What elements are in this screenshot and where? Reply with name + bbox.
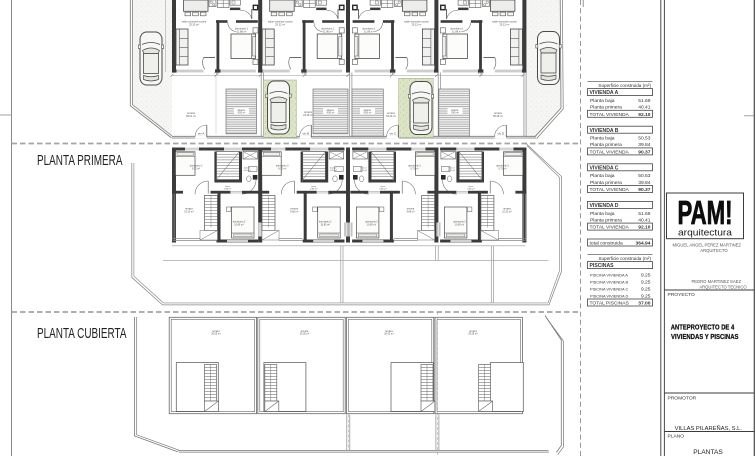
svg-text:364.94: 364.94 [636, 241, 651, 247]
svg-text:Planta primera: Planta primera [590, 217, 622, 223]
svg-text:37.00: 37.00 [638, 301, 651, 307]
svg-text:40.41: 40.41 [638, 217, 651, 223]
svg-text:ARQUITECTO: ARQUITECTO [700, 248, 728, 253]
svg-text:4.45 m²: 4.45 m² [360, 169, 367, 172]
svg-text:TOTAL VIVIENDA: TOTAL VIVIENDA [590, 187, 630, 193]
svg-text:VILLAS PILAREÑAS, S.L.: VILLAS PILAREÑAS, S.L. [675, 425, 743, 432]
svg-text:viv B: viv B [303, 132, 310, 136]
svg-text:7.48: 7.48 [214, 72, 219, 75]
svg-text:viv A: viv A [198, 132, 204, 136]
svg-text:9.68 m²: 9.68 m² [290, 210, 298, 213]
svg-text:10.85 m²: 10.85 m² [455, 223, 465, 226]
svg-text:PAM!: PAM! [678, 194, 733, 231]
svg-text:11.88 m²: 11.88 m² [452, 31, 462, 34]
svg-text:90.37: 90.37 [638, 150, 651, 156]
svg-text:9.25: 9.25 [641, 272, 651, 278]
svg-text:54.40 m²: 54.40 m² [386, 115, 396, 118]
svg-text:4.45 m²: 4.45 m² [243, 169, 250, 172]
svg-text:4.45 m²: 4.45 m² [448, 169, 455, 172]
svg-text:viv C: viv C [390, 132, 398, 136]
svg-text:10.85 m²: 10.85 m² [367, 223, 377, 226]
svg-text:PEDRO MARTINEZ SAEZ: PEDRO MARTINEZ SAEZ [692, 279, 742, 284]
svg-text:50.53: 50.53 [638, 136, 651, 142]
svg-text:total construida: total construida [590, 241, 623, 247]
svg-text:9.85 m²: 9.85 m² [364, 112, 372, 115]
svg-text:Planta primera: Planta primera [590, 105, 622, 111]
svg-text:TOTAL VIVIENDA: TOTAL VIVIENDA [590, 225, 630, 231]
svg-text:58.48 m²: 58.48 m² [493, 115, 503, 118]
svg-text:PLANTAS: PLANTAS [693, 449, 723, 456]
svg-text:arquitectura: arquitectura [678, 228, 733, 239]
svg-text:39.84: 39.84 [638, 142, 651, 148]
svg-text:VIVIENDAS Y PISCINAS: VIVIENDAS Y PISCINAS [671, 332, 739, 341]
svg-text:10.85 m²: 10.85 m² [234, 223, 244, 226]
svg-text:aparca.: aparca. [451, 109, 459, 112]
svg-text:Planta baja: Planta baja [590, 211, 615, 217]
svg-text:69.01 m²: 69.01 m² [186, 115, 196, 118]
svg-text:VIVIENDA A: VIVIENDA A [590, 90, 619, 96]
svg-text:Planta baja: Planta baja [590, 98, 615, 104]
svg-text:ANTEPROYECTO DE 4: ANTEPROYECTO DE 4 [671, 323, 735, 332]
svg-text:10.23 m²: 10.23 m² [502, 210, 512, 213]
svg-text:30.05 m²: 30.05 m² [211, 333, 221, 336]
svg-text:PLANTA PRIMERA: PLANTA PRIMERA [37, 153, 123, 169]
svg-text:24.48 m²: 24.48 m² [303, 114, 313, 117]
svg-text:10.85 m²: 10.85 m² [320, 223, 330, 226]
svg-text:9.25: 9.25 [641, 286, 651, 292]
svg-text:ARQUITECTO TECNICO: ARQUITECTO TECNICO [699, 285, 747, 290]
svg-text:PISCINA VIVIENDA D: PISCINA VIVIENDA D [590, 293, 628, 298]
svg-text:9.72 m²: 9.72 m² [278, 167, 286, 170]
svg-text:25.32 m²: 25.32 m² [499, 23, 509, 26]
svg-text:4.68: 4.68 [478, 72, 483, 75]
svg-text:Superficie construida (m²): Superficie construida (m²) [598, 256, 651, 261]
svg-text:9.85 m²: 9.85 m² [451, 112, 459, 115]
svg-text:9.85 m²: 9.85 m² [327, 112, 335, 115]
svg-text:92.10: 92.10 [638, 112, 651, 118]
svg-text:11.88 m²: 11.88 m² [237, 31, 247, 34]
svg-text:2.88 m²: 2.88 m² [224, 187, 232, 190]
svg-text:aparca.: aparca. [327, 109, 335, 112]
svg-text:25.32 m²: 25.32 m² [189, 23, 199, 26]
svg-text:30.05 m²: 30.05 m² [384, 333, 394, 336]
svg-text:90.37: 90.37 [638, 187, 651, 193]
svg-text:39.84: 39.84 [638, 180, 651, 186]
svg-text:9.72 m²: 9.72 m² [410, 167, 418, 170]
svg-text:PISCINA VIVIENDA B: PISCINA VIVIENDA B [590, 279, 628, 284]
svg-text:11.86 m²: 11.86 m² [364, 31, 374, 34]
svg-text:11.86 m²: 11.86 m² [323, 31, 333, 34]
svg-text:2.88 m²: 2.88 m² [467, 187, 475, 190]
svg-text:40.41: 40.41 [638, 105, 651, 111]
svg-text:TOTAL VIVIENDA: TOTAL VIVIENDA [590, 150, 630, 156]
svg-text:Planta primera: Planta primera [590, 180, 622, 186]
svg-text:10.23 m²: 10.23 m² [184, 210, 194, 213]
svg-text:PISCINA VIVIENDA A: PISCINA VIVIENDA A [590, 272, 628, 277]
svg-text:PISCINAS: PISCINAS [590, 263, 615, 269]
svg-text:Planta baja: Planta baja [590, 173, 615, 179]
svg-text:30.05 m²: 30.05 m² [300, 333, 310, 336]
svg-text:VIVIENDA C: VIVIENDA C [590, 165, 619, 171]
svg-text:92.10: 92.10 [638, 225, 651, 231]
svg-text:PROMOTOR: PROMOTOR [668, 395, 697, 401]
svg-text:PROYECTO: PROYECTO [668, 292, 696, 298]
svg-text:MIGUEL ANGEL PEREZ MARTINEZ: MIGUEL ANGEL PEREZ MARTINEZ [673, 243, 742, 248]
svg-text:51.69: 51.69 [638, 211, 651, 217]
svg-text:4.68: 4.68 [302, 72, 307, 75]
svg-text:Superficie construida (m²): Superficie construida (m²) [598, 83, 651, 88]
svg-text:PLANO: PLANO [668, 434, 685, 440]
svg-text:VIVIENDA B: VIVIENDA B [590, 128, 619, 134]
svg-text:viv D: viv D [498, 132, 506, 136]
svg-text:aparca.: aparca. [238, 109, 246, 112]
svg-text:9.25: 9.25 [641, 293, 651, 299]
svg-text:9.72 m²: 9.72 m² [192, 167, 200, 170]
svg-text:9.68 m²: 9.68 m² [406, 210, 414, 213]
svg-text:7.48: 7.48 [390, 72, 395, 75]
svg-text:2.88 m²: 2.88 m² [310, 187, 318, 190]
svg-text:25.32 m²: 25.32 m² [411, 23, 421, 26]
svg-text:TOTAL VIVIENDA: TOTAL VIVIENDA [590, 112, 630, 118]
svg-text:9.72 m²: 9.72 m² [498, 167, 506, 170]
svg-text:30.08 m²: 30.08 m² [468, 333, 478, 336]
svg-text:9.85 m²: 9.85 m² [238, 112, 246, 115]
svg-text:aparca.: aparca. [364, 109, 372, 112]
svg-text:Planta primera: Planta primera [590, 142, 622, 148]
svg-text:51.69: 51.69 [638, 98, 651, 104]
svg-text:4.45 m²: 4.45 m² [330, 169, 337, 172]
svg-text:2.88 m²: 2.88 m² [379, 187, 387, 190]
svg-text:PISCINA VIVIENDA C: PISCINA VIVIENDA C [590, 286, 628, 291]
svg-text:VIVIENDA D: VIVIENDA D [590, 203, 619, 209]
svg-text:Planta baja: Planta baja [590, 136, 615, 142]
svg-text:PLANTA CUBIERTA: PLANTA CUBIERTA [37, 326, 127, 342]
svg-text:TOTAL PISCINAS: TOTAL PISCINAS [590, 301, 630, 307]
svg-text:25.32 m²: 25.32 m² [275, 23, 285, 26]
svg-text:9.25: 9.25 [641, 279, 651, 285]
svg-text:50.53: 50.53 [638, 173, 651, 179]
